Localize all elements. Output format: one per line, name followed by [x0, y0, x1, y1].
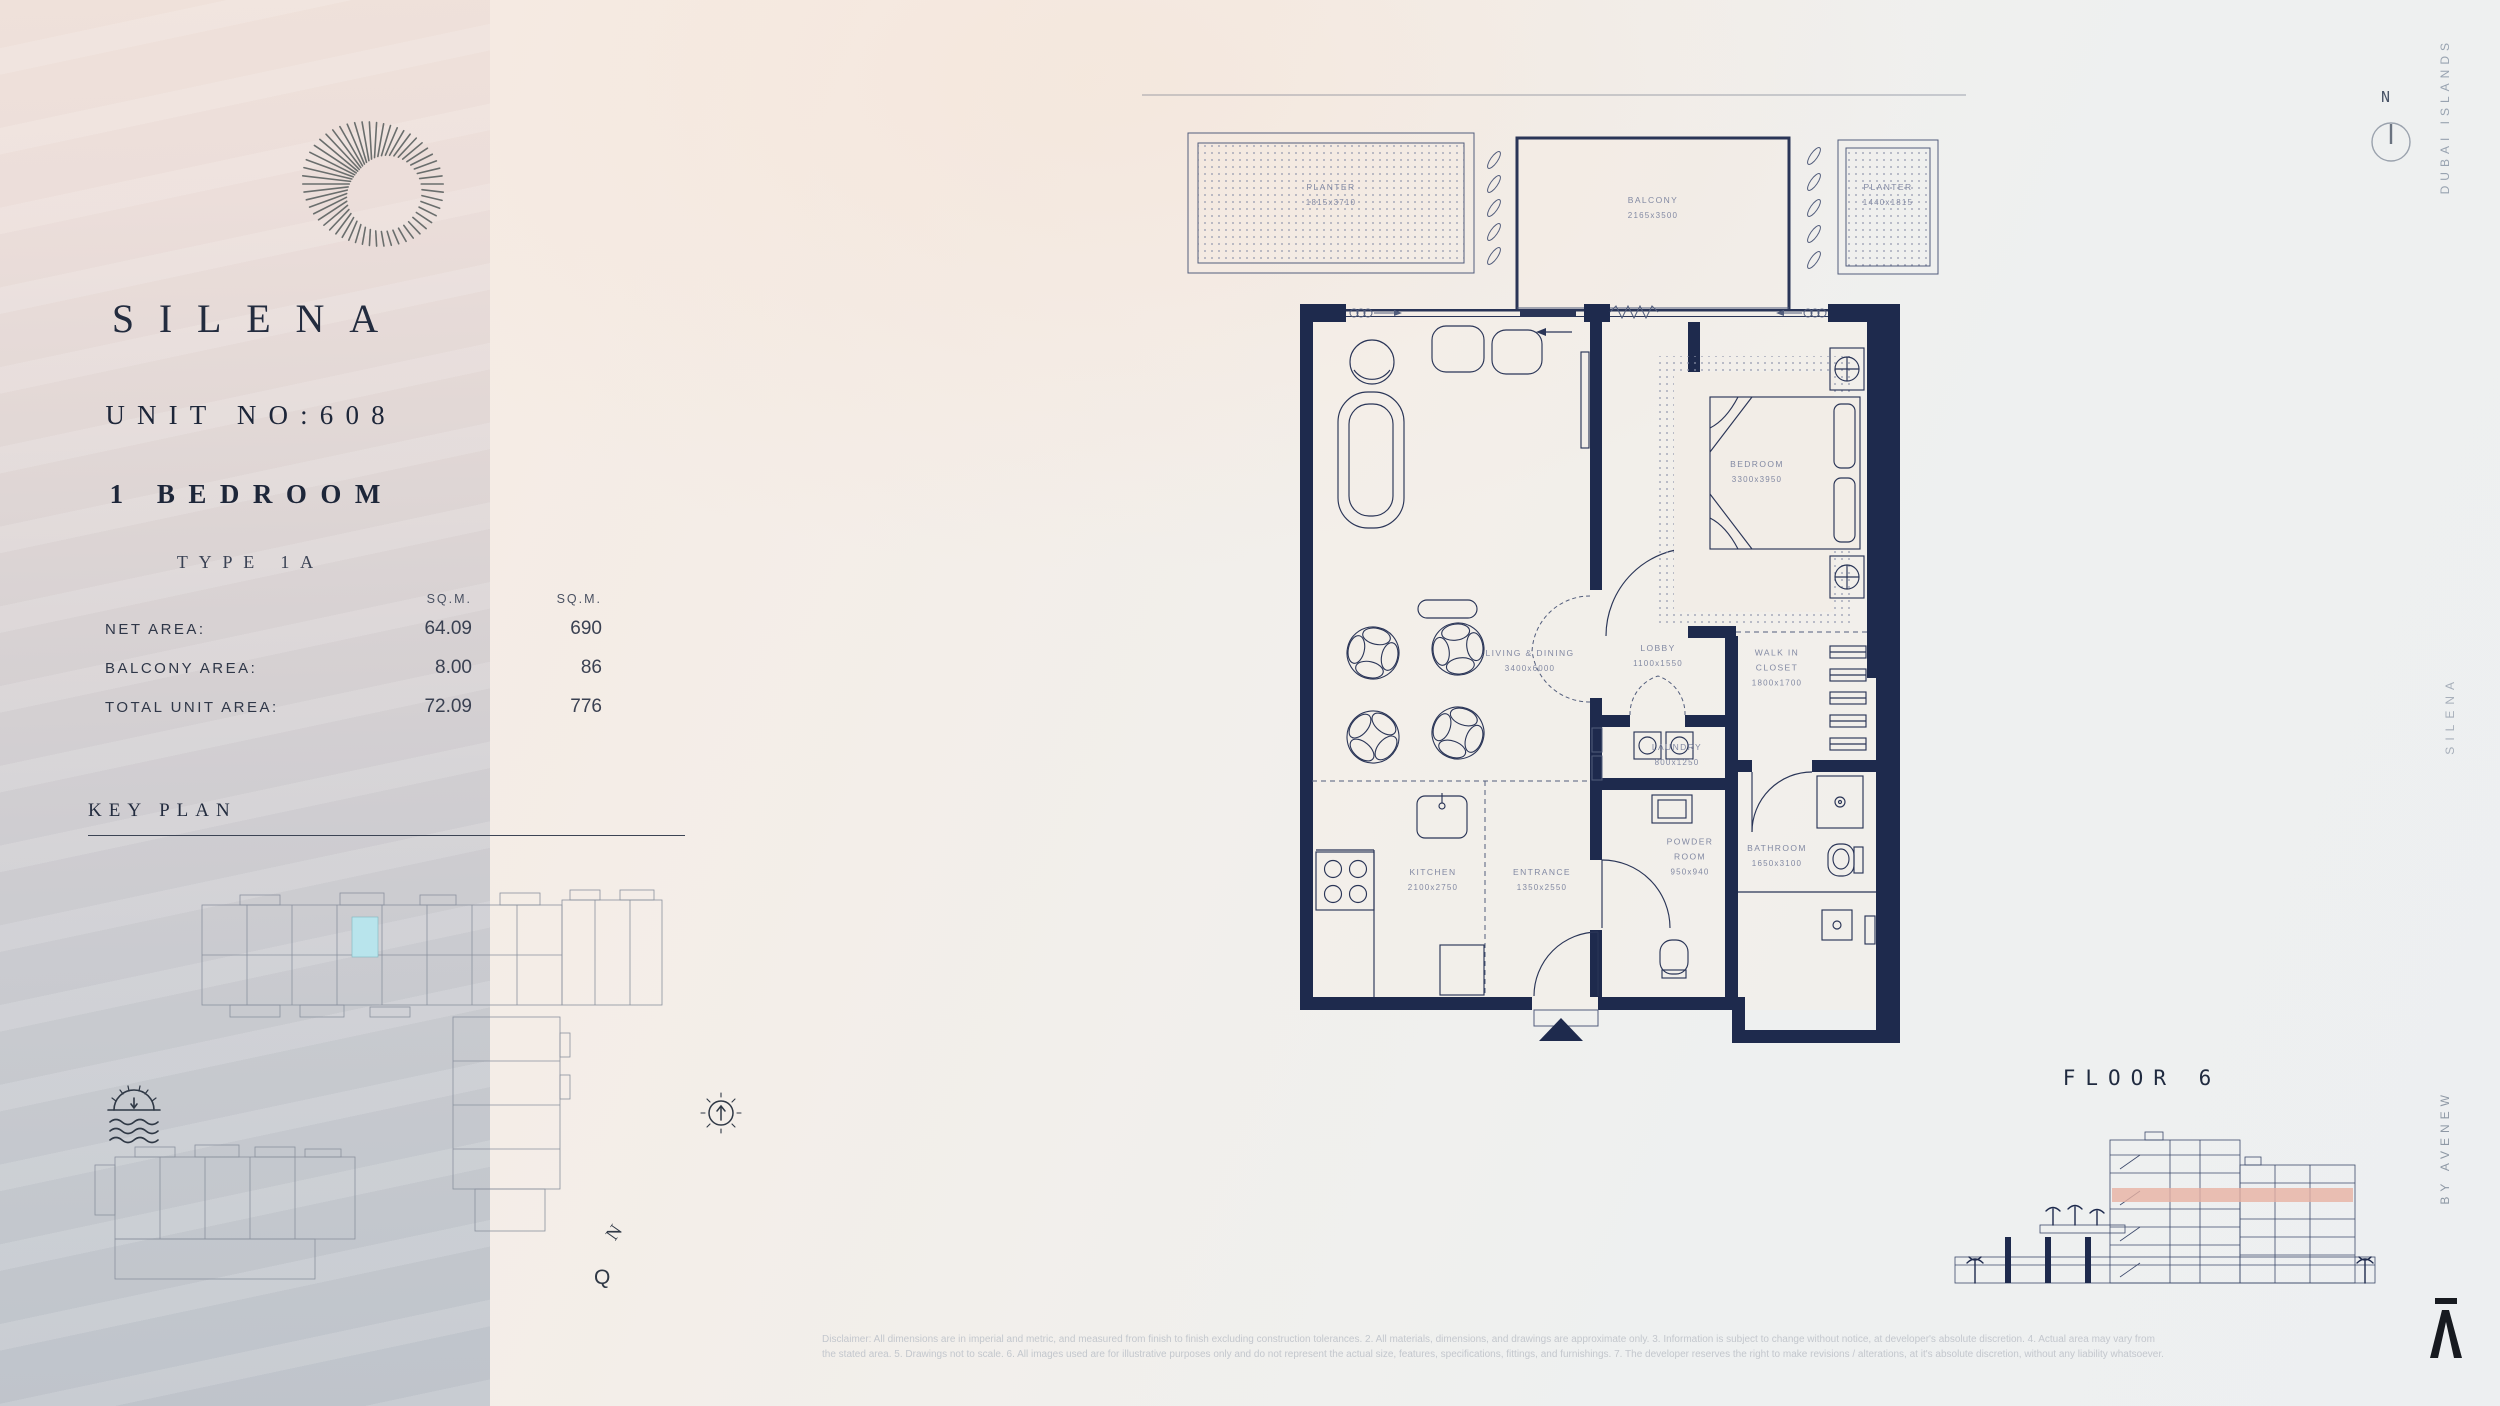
balcony-area-label: BALCONY AREA: [105, 660, 362, 677]
disclaimer-text: Disclaimer: All dimensions are in imperi… [822, 1332, 2400, 1362]
disclaimer-line-2: the stated area. 5. Drawings not to scal… [822, 1347, 2400, 1362]
area-col1-header: SQ.M. [362, 592, 472, 606]
net-area-label: NET AREA: [105, 621, 362, 638]
sunrise-icon [694, 1086, 748, 1140]
avenew-logo-mark [2424, 1296, 2470, 1360]
sunset-icon [98, 1076, 170, 1148]
key-plan-compass-glyph: Q [594, 1266, 610, 1290]
key-plan-title: KEY PLAN [88, 800, 688, 822]
total-area-sqm: 72.09 [362, 696, 472, 718]
total-area-sqft: 776 [472, 696, 602, 718]
brand-title: SILENA [0, 295, 490, 342]
compass-north-label: N [2381, 88, 2390, 106]
area-col2-header: SQ.M. [472, 592, 602, 606]
unit-number: UNIT NO:608 [0, 400, 490, 431]
compass-icon [2367, 116, 2415, 164]
unit-type: TYPE 1A [0, 552, 490, 573]
table-row: BALCONY AREA: 8.00 86 [105, 657, 602, 679]
key-plan-section: KEY PLAN [88, 800, 688, 836]
total-area-label: TOTAL UNIT AREA: [105, 699, 362, 716]
net-area-sqm: 64.09 [362, 618, 472, 640]
floor-number-label: FLOOR 6 [2063, 1066, 2222, 1090]
floor-plan-drawing [1140, 60, 1970, 1050]
key-plan-underline [88, 835, 685, 836]
area-table-header: SQ.M. SQ.M. [105, 592, 602, 606]
edge-text-by-avenew: BY AVENEW [2438, 1090, 2452, 1205]
key-plan-drawing [90, 865, 690, 1300]
key-plan-unit-highlight [352, 917, 378, 957]
building-elevation [1945, 1105, 2385, 1305]
bedroom-count: 1 BEDROOM [0, 479, 490, 510]
disclaimer-line-1: Disclaimer: All dimensions are in imperi… [822, 1332, 2400, 1347]
balcony-area-sqft: 86 [472, 657, 602, 679]
table-row: NET AREA: 64.09 690 [105, 618, 602, 640]
area-table: SQ.M. SQ.M. NET AREA: 64.09 690 BALCONY … [105, 592, 602, 735]
highlighted-floor-band [2112, 1188, 2353, 1202]
balcony-area-sqm: 8.00 [362, 657, 472, 679]
floor-plan [1140, 60, 1970, 1050]
table-row: TOTAL UNIT AREA: 72.09 776 [105, 696, 602, 718]
edge-text-dubai-islands: DUBAI ISLANDS [2438, 38, 2452, 194]
net-area-sqft: 690 [472, 618, 602, 640]
silena-spiral-logo [293, 106, 453, 266]
edge-text-silena: SILENA [2443, 676, 2457, 755]
